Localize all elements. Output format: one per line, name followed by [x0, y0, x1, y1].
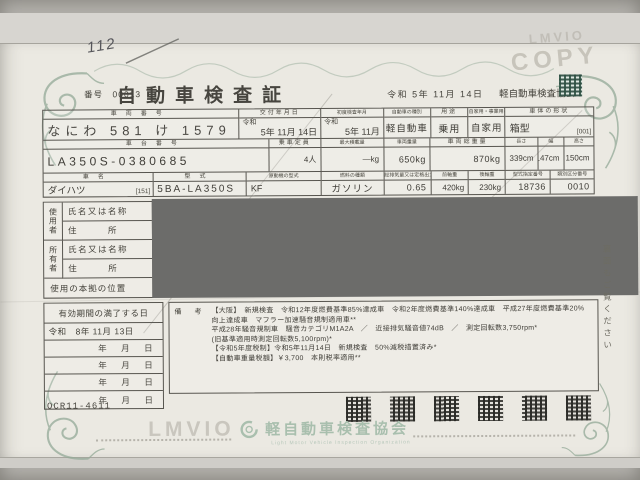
remarks-text: 【大阪】 新規検査 令和12年度燃費基準85%達成車 令和2年度燃費基準140%… — [211, 304, 594, 364]
table-row: 車両番号 なにわ 581 け 1579 交付年月日 令和 5年 11月 14日 … — [43, 107, 593, 140]
field-weight: 車両重量 650kg — [384, 138, 431, 170]
user-address-label: 住 所 — [63, 221, 152, 241]
field-make: 車名 ダイハツ [151] — [44, 173, 154, 197]
org-name-en: Light Motor Vehicle Inspection Organizat… — [271, 439, 410, 446]
blank-date-row: 年 月 日 — [45, 357, 163, 375]
field-value: 令和 5年 11月 — [321, 118, 383, 138]
table-row: 車台番号 LA350S-0380685 乗車定員 4人 最大積載量 ―kg 車両… — [43, 137, 593, 173]
field-label: 前軸重 — [431, 171, 468, 180]
field-front-axle: 前軸重 420kg — [431, 171, 469, 194]
field-label: 総排気量又は定格出力 — [384, 171, 430, 180]
field-value: 0.65 — [384, 180, 430, 194]
field-label: 型式指定番号 — [506, 171, 550, 180]
expiry-date: 令和 8年 11月 13日 — [45, 323, 163, 341]
field-width: 幅 147cm — [538, 138, 564, 170]
base-location-label: 使用の本拠の位置 — [44, 278, 152, 298]
organization-logo: 軽自動車検査協会 Light Motor Vehicle Inspection … — [239, 417, 411, 446]
org-circle-icon — [239, 419, 259, 439]
field-value: 5BA-LA350S — [153, 181, 246, 196]
field-label: 自家用・事業用の別 — [469, 108, 505, 117]
redaction-box — [152, 196, 639, 298]
field-displacement: 総排気量又は定格出力 0.65 — [384, 171, 431, 194]
field-ownership: 自家用・事業用の別 自家用 — [469, 108, 506, 137]
field-max-load: 最大積載量 ―kg — [321, 139, 384, 171]
remarks-line: 【自動車重量税額】￥3,700 本則税率適用** — [212, 352, 595, 364]
handwritten-note: 112 — [86, 35, 118, 57]
field-label: 車両総重量 — [431, 138, 505, 147]
field-label: 初度検査年月 — [321, 109, 383, 118]
field-label: 交付年月日 — [239, 109, 320, 118]
issuer-stamp — [559, 74, 582, 96]
field-chassis: 車台番号 LA350S-0380685 — [43, 139, 269, 172]
validity-table: 有効期間の満了する日 令和 8年 11月 13日 年 月 日 年 月 日 年 月… — [43, 302, 164, 410]
field-label: 長さ — [505, 138, 537, 147]
field-use: 用途 乗用 — [431, 108, 469, 137]
remarks-box: 備 考 【大阪】 新規検査 令和12年度燃費基準85%達成車 令和2年度燃費基準… — [168, 299, 599, 394]
photo-background: LMVIO COPY LMVIO 112 番号 00013 自動車検査証 令和 … — [0, 0, 640, 480]
field-value: 420kg — [431, 180, 468, 194]
ornamental-line — [94, 57, 554, 80]
anticopy-watermark: LMVIO — [528, 27, 585, 46]
field-value: ―kg — [321, 148, 383, 171]
field-label: 車両重量 — [384, 138, 430, 147]
qr-code — [566, 395, 591, 420]
form-code: OCR11-4611 — [47, 401, 111, 411]
field-value: 0010 — [551, 179, 594, 193]
validity-label: 有効期間の満了する日 — [44, 303, 162, 324]
field-category: 自動車の種別 軽自動車 — [384, 108, 431, 137]
field-value: 乗用 — [431, 117, 468, 137]
reverse-side-note: 裏面もご覧ください — [601, 244, 614, 352]
user-name-label: 氏名又は名称 — [63, 202, 152, 222]
dotted-line — [413, 434, 575, 437]
table-row: 車名 ダイハツ [151] 型式 5BA-LA350S 原動機の型式 KF 燃料… — [44, 170, 594, 196]
field-label: 最大積載量 — [321, 139, 383, 148]
field-issue-date: 交付年月日 令和 5年 11月 14日 — [239, 109, 321, 138]
field-capacity: 乗車定員 4人 — [269, 139, 321, 171]
date-value: 5年 11月 — [324, 127, 380, 137]
blank-date-row: 年 月 日 — [45, 374, 163, 392]
parties-table: 使用者 氏名又は名称 住 所 所有者 氏名又は名称 住 所 使用の本拠の位置 — [43, 201, 154, 299]
page-title: 自動車検査証 — [117, 80, 291, 108]
field-value: 4人 — [269, 148, 320, 171]
field-label: 自動車の種別 — [384, 108, 430, 117]
serial-number-label: 番号 — [84, 89, 103, 99]
field-value: なにわ 581 け 1579 — [43, 118, 238, 139]
date-value: 5年 11月 14日 — [242, 127, 317, 137]
field-label: 燃料の種類 — [321, 172, 383, 181]
field-value: 令和 5年 11月 14日 — [239, 118, 320, 138]
field-body-shape: 車体の形状 箱型 [001] — [506, 107, 594, 137]
qr-code — [522, 396, 547, 421]
qr-code — [478, 396, 503, 421]
field-class-number: 類別区分番号 0010 — [551, 170, 594, 193]
field-value: LA350S-0380685 — [43, 148, 268, 172]
field-first-inspection: 初度検査年月 令和 5年 11月 — [321, 109, 384, 138]
field-value: 自家用 — [469, 117, 505, 137]
remarks-label: 備 考 — [174, 307, 204, 317]
dotted-line — [96, 439, 231, 442]
field-value: 150cm — [564, 146, 593, 169]
field-value: ガソリン — [322, 181, 384, 195]
qr-code — [434, 396, 459, 421]
field-value: 18736 — [506, 180, 550, 194]
field-label: 用途 — [431, 108, 468, 117]
blank-date-row: 年 月 日 — [45, 340, 163, 358]
field-plate: 車両番号 なにわ 581 け 1579 — [43, 109, 239, 139]
field-type-designation: 型式指定番号 18736 — [506, 171, 551, 194]
field-value: 230kg — [469, 180, 505, 194]
field-label: 乗車定員 — [269, 139, 320, 148]
field-value: 339cm — [505, 147, 537, 170]
owner-address-label: 住 所 — [63, 259, 152, 279]
field-value: KF — [247, 181, 321, 195]
field-label: 類別区分番号 — [551, 170, 594, 179]
field-label: 幅 — [538, 138, 563, 147]
owner-label: 所有者 — [44, 241, 63, 279]
org-name: 軽自動車検査協会 — [265, 417, 409, 439]
field-label: 後軸重 — [469, 171, 505, 180]
vehicle-data-table: 車両番号 なにわ 581 け 1579 交付年月日 令和 5年 11月 14日 … — [42, 106, 595, 197]
field-model: 型式 5BA-LA350S — [153, 172, 247, 196]
field-value: 147cm — [538, 147, 563, 170]
field-value: 650kg — [384, 147, 430, 170]
field-label: 原動機の型式 — [247, 172, 321, 181]
field-engine: 原動機の型式 KF — [247, 172, 322, 195]
field-value: 870kg — [431, 147, 505, 170]
field-fuel: 燃料の種類 ガソリン — [321, 172, 384, 195]
owner-name-label: 氏名又は名称 — [63, 240, 152, 260]
make-code: [151] — [136, 188, 151, 195]
certificate-content: LMVIO COPY LMVIO 112 番号 00013 自動車検査証 令和 … — [0, 0, 640, 480]
shape-code: [001] — [577, 128, 592, 135]
field-rear-axle: 後軸重 230kg — [469, 171, 506, 194]
user-label: 使用者 — [44, 203, 63, 241]
field-gross-weight: 車両総重量 870kg — [431, 138, 506, 170]
field-value: 軽自動車 — [384, 117, 430, 137]
field-label: 高さ — [564, 137, 593, 146]
field-height: 高さ 150cm — [564, 137, 593, 169]
field-length: 長さ 339cm — [505, 138, 538, 170]
header-issue-date: 令和 5年 11月 14日 — [387, 87, 483, 101]
